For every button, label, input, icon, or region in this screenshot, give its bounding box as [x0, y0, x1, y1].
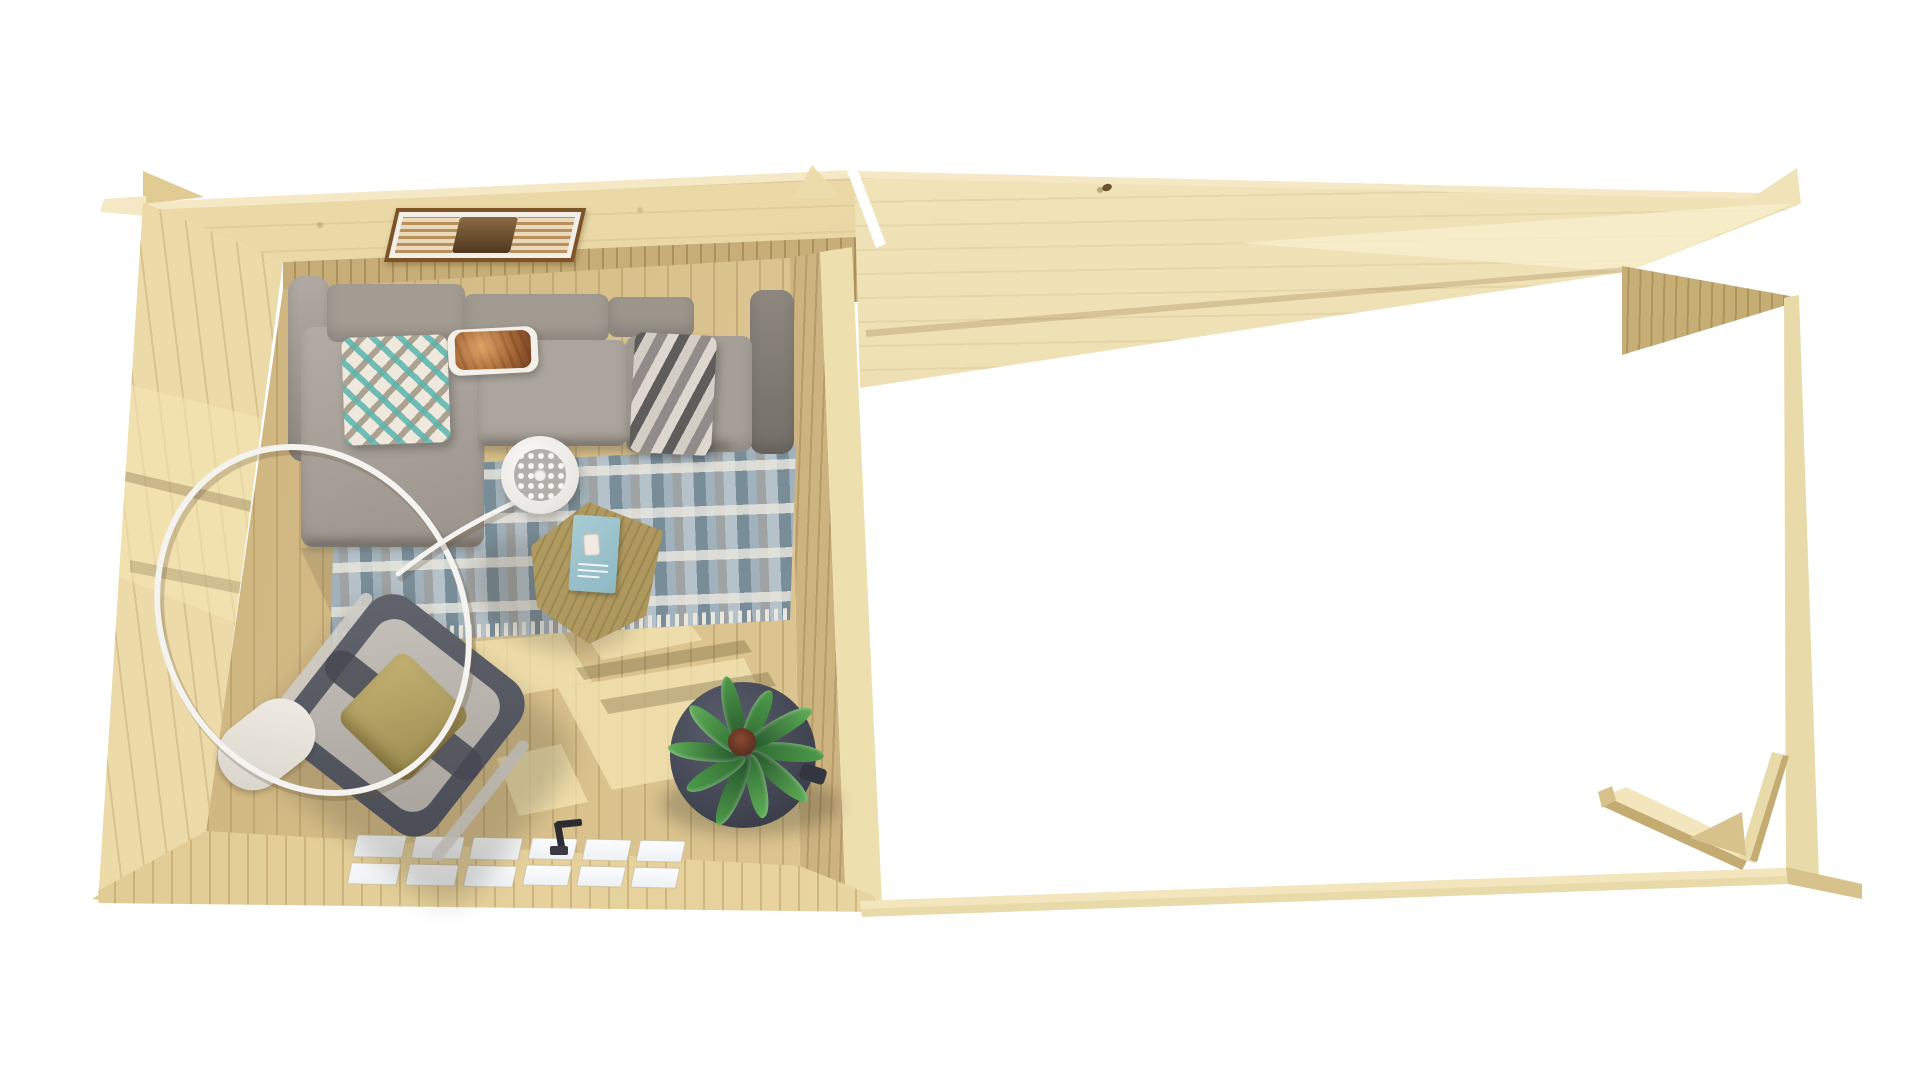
render-scene: [0, 0, 1920, 1080]
lamp-center-cap: [534, 469, 546, 481]
arc-lamp-stand: [0, 0, 1920, 1080]
